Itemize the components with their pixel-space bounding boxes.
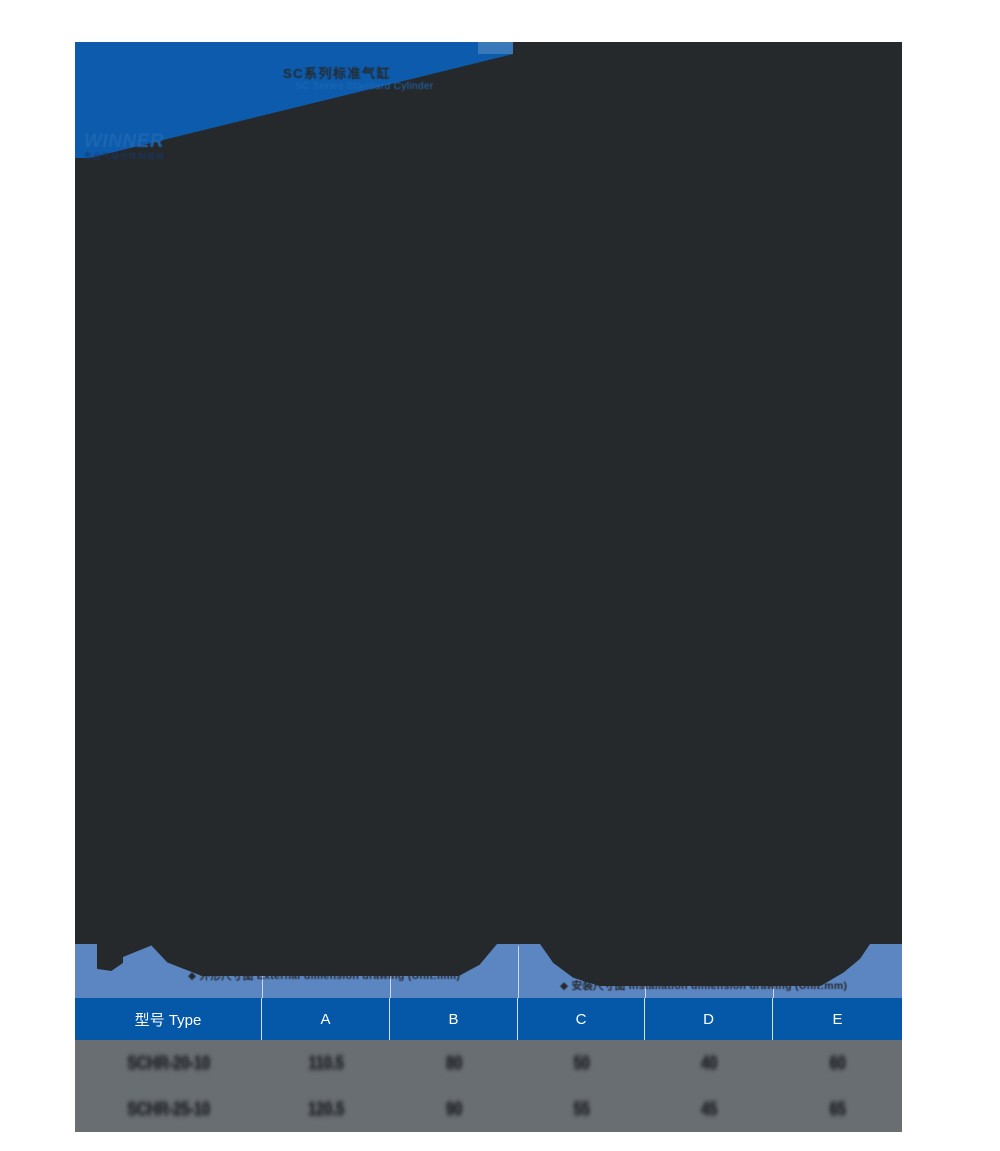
header-cell-e: E: [773, 998, 902, 1040]
left-drawing-caption: ◆ 外形尺寸图 External dimension drawing (Unit…: [188, 968, 460, 982]
header-cell-c: C: [518, 998, 645, 1040]
cell-a: 120.5: [262, 1086, 390, 1132]
cell-b: 80: [390, 1040, 518, 1086]
cell-c: 50: [518, 1040, 645, 1086]
page-subtitle: SC Series Standard Cylinder: [295, 81, 465, 93]
header-cell-b: B: [390, 998, 518, 1040]
header-cell-d: D: [645, 998, 773, 1040]
catalog-page: SC系列标准气缸 SC Series Standard Cylinder WIN…: [0, 0, 1000, 1151]
header-cell-a: A: [262, 998, 390, 1040]
header-cell-type: 型号 Type: [75, 998, 262, 1040]
header-banner-notch: [478, 42, 513, 54]
table-row: SCHR-20-10 110.5 80 50 40 60: [75, 1040, 902, 1086]
cell-d: 45: [645, 1086, 773, 1132]
spec-table-body: SCHR-20-10 110.5 80 50 40 60 SCHR-25-10 …: [75, 1040, 902, 1132]
cell-e: 60: [773, 1040, 902, 1086]
table-row: SCHR-25-10 120.5 90 55 45 65: [75, 1086, 902, 1132]
cell-b: 90: [390, 1086, 518, 1132]
cell-c: 55: [518, 1086, 645, 1132]
cell-model: SCHR-25-10: [75, 1086, 262, 1132]
brand-logo: WINNER: [84, 131, 164, 153]
drawing-area: [75, 42, 902, 944]
brand-tagline: 专业气动元件制造商: [84, 151, 165, 162]
page-title: SC系列标准气缸: [283, 63, 465, 79]
column-separator: [518, 946, 519, 998]
right-drawing-caption: ◆ 安装尺寸图 Installation dimension drawing (…: [560, 978, 847, 992]
cell-model: SCHR-20-10: [75, 1040, 262, 1086]
cell-a: 110.5: [262, 1040, 390, 1086]
cell-e: 65: [773, 1086, 902, 1132]
cell-d: 40: [645, 1040, 773, 1086]
spec-table-header: 型号 Type A B C D E: [75, 998, 902, 1040]
